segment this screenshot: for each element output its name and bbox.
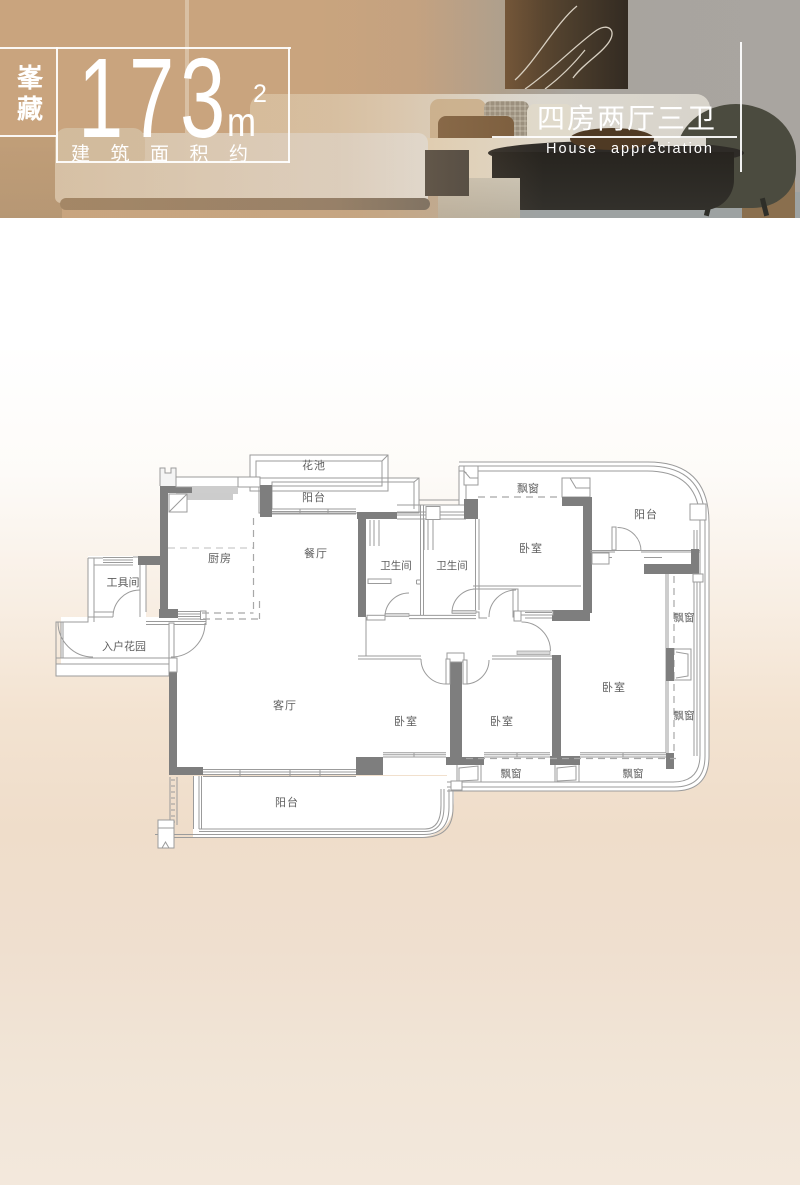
svg-text:飘窗: 飘窗 <box>623 767 644 780</box>
svg-text:阳台: 阳台 <box>634 507 658 521</box>
svg-text:餐厅: 餐厅 <box>304 546 328 560</box>
svg-text:阳台: 阳台 <box>302 490 326 504</box>
svg-text:工具间: 工具间 <box>107 576 140 589</box>
svg-text:卧室: 卧室 <box>394 714 418 728</box>
svg-text:飘窗: 飘窗 <box>674 709 695 722</box>
svg-text:客厅: 客厅 <box>273 698 297 712</box>
svg-text:卧室: 卧室 <box>519 541 543 555</box>
svg-text:卫生间: 卫生间 <box>436 559 468 572</box>
svg-text:入户花园: 入户花园 <box>102 639 146 653</box>
svg-text:飘窗: 飘窗 <box>501 767 522 780</box>
svg-text:飘窗: 飘窗 <box>674 611 695 624</box>
svg-text:厨房: 厨房 <box>208 552 232 565</box>
svg-text:卫生间: 卫生间 <box>380 559 412 572</box>
svg-text:卧室: 卧室 <box>490 714 514 728</box>
svg-text:花池: 花池 <box>302 459 326 472</box>
svg-text:卧室: 卧室 <box>602 680 626 694</box>
svg-text:飘窗: 飘窗 <box>517 481 539 495</box>
svg-text:阳台: 阳台 <box>275 795 299 809</box>
